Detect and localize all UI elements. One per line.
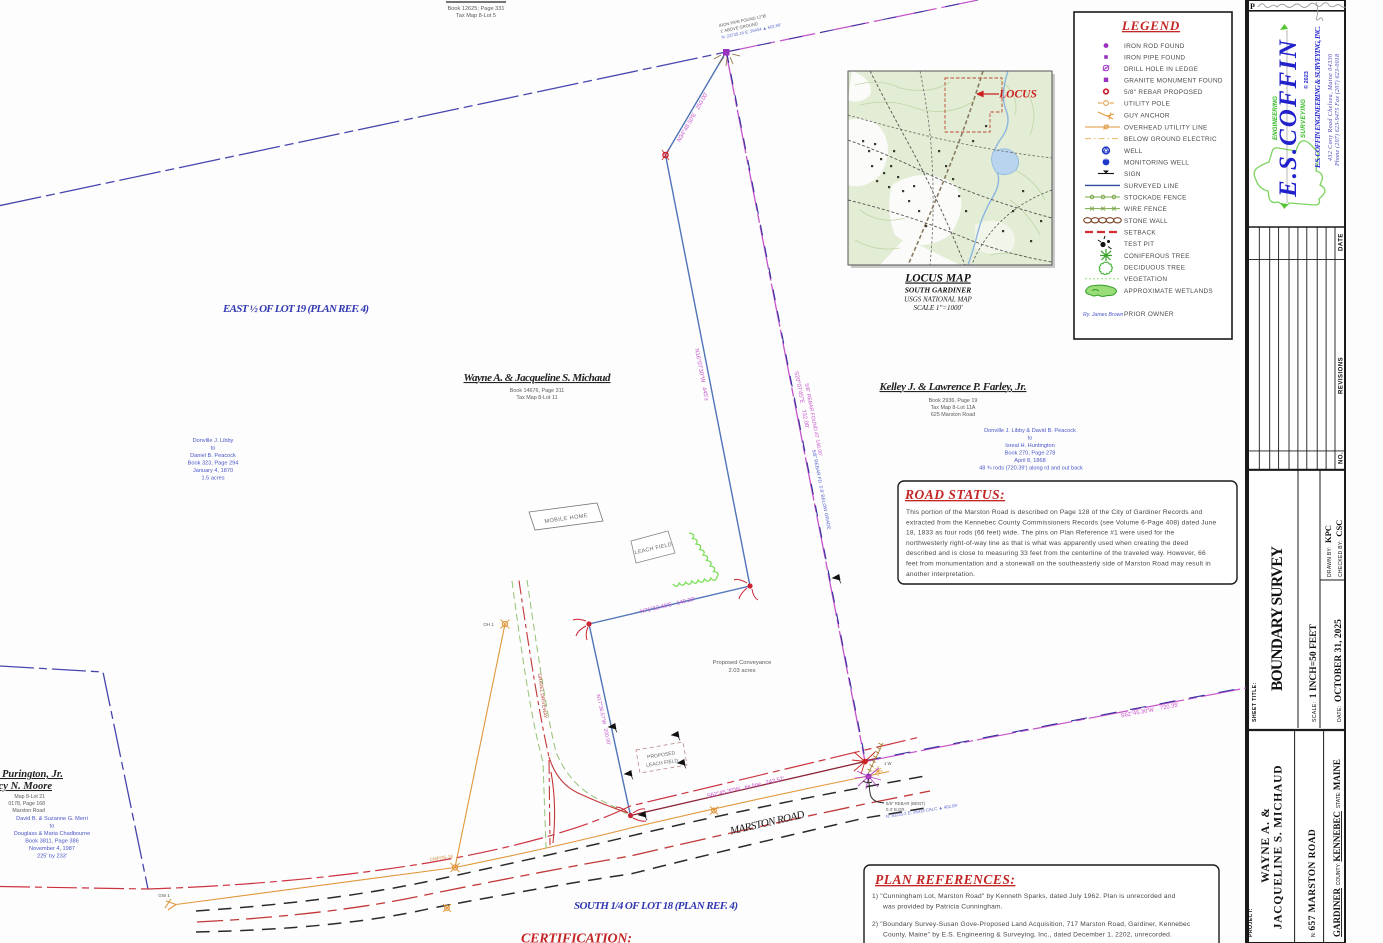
svg-text:cy N. Moore: cy N. Moore: [0, 781, 52, 792]
svg-text:TEST PIT: TEST PIT: [1124, 241, 1154, 248]
svg-text:STOCKADE FENCE: STOCKADE FENCE: [1124, 195, 1187, 202]
svg-text:N: 657 MARSTON ROAD: N: 657 MARSTON ROAD: [1308, 829, 1318, 937]
svg-text:PRIOR OWNER: PRIOR OWNER: [1124, 311, 1174, 318]
svg-text:E.S. COFFIN ENGINEERING & SURV: E.S. COFFIN ENGINEERING & SURVEYING, INC…: [1314, 26, 1322, 169]
svg-text:Book 3811, Page 386: Book 3811, Page 386: [25, 839, 78, 845]
svg-text:© 2023: © 2023: [1303, 71, 1310, 89]
svg-text:LOCUS: LOCUS: [998, 89, 1037, 101]
svg-text:Donville J. Libby: Donville J. Libby: [193, 438, 234, 444]
svg-text:PLAN REFERENCES:: PLAN REFERENCES:: [875, 872, 1015, 887]
svg-text:CONIFEROUS TREE: CONIFEROUS TREE: [1124, 253, 1190, 260]
svg-text:SIGN: SIGN: [1124, 171, 1141, 178]
svg-text:SETBACK: SETBACK: [1124, 230, 1156, 237]
svg-text:432 Cony Road Chelsea, Maine: 432 Cony Road Chelsea, Maine 04330: [1327, 54, 1334, 161]
svg-text:18, 1833 as four rods (66 feet: 18, 1833 as four rods (66 feet) wide. Th…: [906, 530, 1174, 537]
svg-text:1.5 acres: 1.5 acres: [201, 476, 224, 482]
svg-text:5/8" REBAR (BENT): 5/8" REBAR (BENT): [886, 801, 926, 806]
svg-text:OH 1: OH 1: [483, 622, 494, 627]
svg-text:2) "Boundary Survey-Susan Gov: 2) "Boundary Survey-Susan Gove-Proposed …: [872, 921, 1191, 928]
svg-text:Tax Map 8-Lot 11: Tax Map 8-Lot 11: [516, 395, 557, 401]
svg-text:to: to: [50, 824, 55, 830]
svg-text:Wayne A. & Jacqueline S. Micha: Wayne A. & Jacqueline S. Michaud: [464, 372, 612, 384]
svg-text:REVISIONS: REVISIONS: [1339, 357, 1345, 394]
svg-text:WIRE FENCE: WIRE FENCE: [1124, 206, 1167, 213]
svg-text:GRANITE MONUMENT FOUND: GRANITE MONUMENT FOUND: [1124, 78, 1223, 85]
svg-text:LEGEND: LEGEND: [1121, 18, 1180, 33]
svg-text:VEGETATION: VEGETATION: [1124, 276, 1167, 283]
svg-text:Douglass & Maria Chadbourne: Douglass & Maria Chadbourne: [14, 831, 91, 837]
svg-text:Tax Map 8-Lot 11A: Tax Map 8-Lot 11A: [931, 405, 976, 411]
svg-text:County, Maine" by E.S. Enginee: County, Maine" by E.S. Engineering & Sur…: [883, 931, 1172, 938]
svg-text:Donville J. Libby & David B. P: Donville J. Libby & David B. Peacock: [984, 428, 1076, 434]
svg-text:. Purington, Jr.: . Purington, Jr.: [0, 769, 63, 780]
svg-text:Book 270, Page 278: Book 270, Page 278: [1005, 451, 1056, 457]
svg-text:SHEET TITLE:: SHEET TITLE:: [1252, 682, 1258, 722]
svg-text:225' by 233': 225' by 233': [37, 854, 67, 860]
svg-text:5/8" REBAR PROPOSED: 5/8" REBAR PROPOSED: [1124, 89, 1203, 96]
svg-text:BELOW GROUND ELECTRIC: BELOW GROUND ELECTRIC: [1124, 136, 1217, 143]
svg-text:Marston Road: Marston Road: [12, 808, 45, 814]
svg-text:GARDINER COUNTY: KENNEBEC ST: GARDINER COUNTY: KENNEBEC STATE: MAINE: [1332, 759, 1342, 937]
svg-text:DECIDUOUS TREE: DECIDUOUS TREE: [1124, 265, 1185, 272]
svg-text:was provided by Patricia Cunni: was provided by Patricia Cunningham.: [882, 903, 1003, 910]
svg-text:described and is close to meas: described and is close to measuring 33 f…: [906, 550, 1206, 557]
svg-text:Kelley J. & Lawrence P. Farley: Kelley J. & Lawrence P. Farley, Jr.: [879, 381, 1027, 393]
svg-text:IRON PIPE FOUND: IRON PIPE FOUND: [1124, 55, 1185, 62]
svg-text:IRON ROD FOUND: IRON ROD FOUND: [1124, 43, 1185, 50]
svg-text:USGS NATIONAL MAP: USGS NATIONAL MAP: [904, 296, 972, 304]
svg-text:January 4, 1870: January 4, 1870: [193, 468, 233, 474]
svg-text:CERTIFICATION:: CERTIFICATION:: [521, 932, 632, 943]
svg-text:feet from monumentation and a: feet from monumentation and a stonewall …: [906, 561, 1211, 568]
svg-text:GW 1: GW 1: [158, 893, 170, 898]
svg-text:November 4, 1987: November 4, 1987: [29, 846, 75, 852]
svg-text:ROAD STATUS:: ROAD STATUS:: [904, 487, 1005, 502]
svg-text:JACQUELINE S. MICHAUD: JACQUELINE S. MICHAUD: [1273, 765, 1285, 930]
svg-text:David B. & Suzanne G. Merri: David B. & Suzanne G. Merri: [16, 816, 88, 822]
svg-text:SURVEYING: SURVEYING: [1300, 99, 1307, 138]
svg-text:NO.: NO.: [1339, 452, 1345, 464]
svg-text:Proposed Conveyance: Proposed Conveyance: [713, 660, 772, 666]
svg-text:Book 12625; Page 331: Book 12625; Page 331: [448, 6, 505, 12]
svg-text:SOUTH GARDINER: SOUTH GARDINER: [905, 286, 971, 295]
svg-text:EAST ½ OF LOT 19 (PLAN REF. 4): EAST ½ OF LOT 19 (PLAN REF. 4): [222, 303, 369, 315]
svg-text:another interpretation.: another interpretation.: [906, 571, 975, 578]
svg-text:SOUTH 1/4 OF LOT 18 (PLAN REF.: SOUTH 1/4 OF LOT 18 (PLAN REF. 4): [574, 900, 738, 912]
svg-text:April 8, 1868: April 8, 1868: [1014, 458, 1045, 464]
svg-text:Map 8-Lot 21: Map 8-Lot 21: [14, 794, 45, 800]
svg-text:extracted from the Kennebec Co: extracted from the Kennebec County Commi…: [906, 519, 1216, 526]
svg-text:Isreal H. Huntington: Isreal H. Huntington: [1005, 443, 1054, 449]
svg-text:625 Marston Road: 625 Marston Road: [931, 412, 975, 418]
svg-text:STONE WALL: STONE WALL: [1124, 218, 1168, 225]
svg-text:ENGINEERING: ENGINEERING: [1272, 96, 1279, 140]
svg-text:GUY ANCHOR: GUY ANCHOR: [1124, 113, 1170, 120]
svg-text:to: to: [1028, 436, 1033, 442]
svg-text:2.03 acres: 2.03 acres: [728, 668, 755, 674]
svg-text:Phone (207) 623-9475 Fax (207: Phone (207) 623-9475 Fax (207) 623-0018: [1334, 54, 1341, 167]
svg-text:UTILITY POLE: UTILITY POLE: [1124, 101, 1170, 108]
svg-text:SCALE 1"=1000': SCALE 1"=1000': [913, 304, 963, 312]
svg-text:0178, Page 168: 0178, Page 168: [8, 801, 45, 807]
svg-text:WELL: WELL: [1124, 148, 1143, 155]
svg-text:APPROXIMATE WETLANDS: APPROXIMATE WETLANDS: [1124, 288, 1213, 295]
svg-text:1 W: 1 W: [884, 761, 891, 766]
svg-text:BOUNDARY SURVEY: BOUNDARY SURVEY: [1269, 546, 1286, 691]
svg-text:PROJECT:: PROJECT:: [1248, 908, 1254, 937]
svg-text:MONITORING WELL: MONITORING WELL: [1124, 160, 1189, 167]
svg-text:Book 323, Page 294: Book 323, Page 294: [188, 461, 239, 467]
svg-text:P: P: [1250, 2, 1255, 11]
svg-text:E.S.COFFIN: E.S.COFFIN: [1275, 39, 1302, 198]
svg-text:WAYNE A. &: WAYNE A. &: [1260, 807, 1272, 883]
svg-text:LOCUS MAP: LOCUS MAP: [904, 273, 971, 285]
svg-text:1) "Cunningham Lot, Marston R: 1) "Cunningham Lot, Marston Road" by Ken…: [872, 893, 1176, 900]
svg-text:Book 14676, Page 311: Book 14676, Page 311: [510, 388, 564, 394]
svg-text:to: to: [211, 446, 216, 452]
svg-text:SURVEYED LINE: SURVEYED LINE: [1124, 183, 1179, 190]
svg-text:DRILL HOLE IN LEDGE: DRILL HOLE IN LEDGE: [1124, 66, 1198, 73]
svg-text:Daniel B. Peacock: Daniel B. Peacock: [190, 453, 236, 459]
svg-text:northwesterly right-of-way lin: northwesterly right-of-way line as that …: [906, 540, 1188, 547]
svg-text:This portion of the Marston Ro: This portion of the Marston Road is desc…: [906, 509, 1203, 516]
svg-text:Ry. James Brown: Ry. James Brown: [1083, 312, 1123, 318]
svg-text:OVERHEAD UTILITY LINE: OVERHEAD UTILITY LINE: [1124, 125, 1208, 132]
svg-text:Book 2936, Page 19: Book 2936, Page 19: [929, 398, 978, 404]
svg-text:DATE: DATE: [1339, 233, 1345, 251]
svg-text:Tax Map 8-Lot 5: Tax Map 8-Lot 5: [456, 13, 496, 19]
svg-text:48 ¾ rods (720.39') along rd a: 48 ¾ rods (720.39') along rd and out bac…: [979, 466, 1083, 472]
